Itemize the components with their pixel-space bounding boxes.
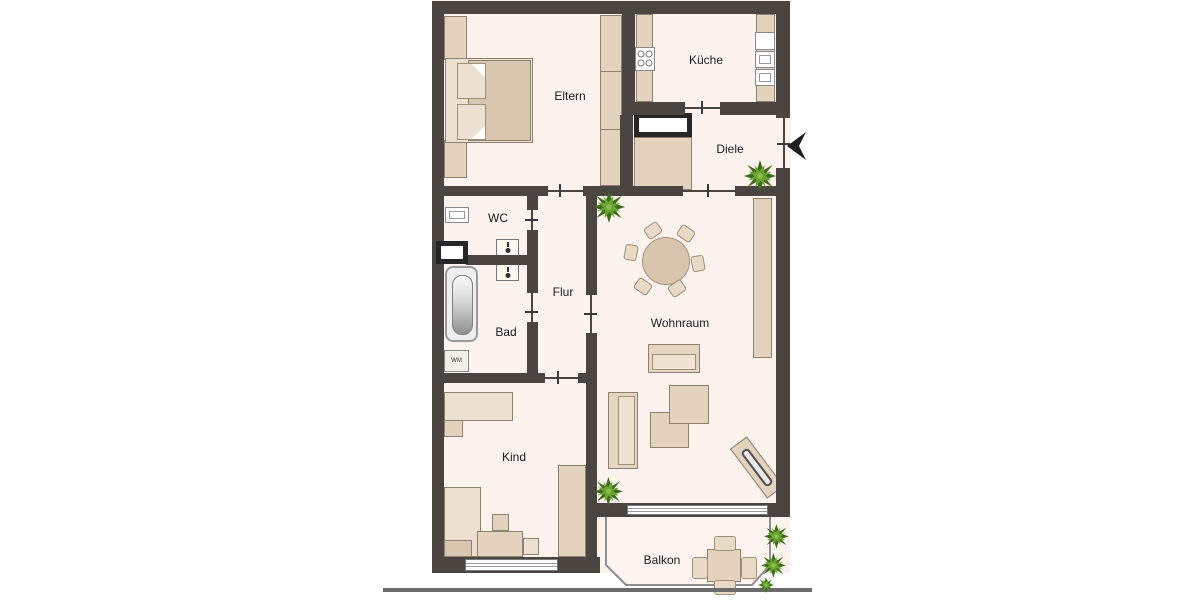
wall [776, 1, 790, 118]
wall [586, 186, 683, 196]
dining-chair [623, 243, 639, 261]
ground-line [383, 588, 812, 592]
room-label-bad: Bad [495, 325, 516, 339]
room-label-diele: Diele [716, 142, 743, 156]
room-label-balkon: Balkon [644, 553, 681, 567]
wall [583, 186, 597, 196]
bathtub-icon [445, 266, 478, 342]
floor-plan: WM [0, 0, 1200, 600]
door [683, 190, 735, 192]
wardrobe [444, 16, 467, 60]
balcony-chair [741, 557, 757, 579]
nightstand [444, 420, 463, 437]
washbasin-icon [445, 207, 469, 223]
room-label-kind: Kind [502, 450, 526, 464]
washing-machine-label: WM [451, 358, 462, 364]
wall [586, 373, 597, 573]
wardrobe [558, 465, 586, 557]
sofa [608, 392, 638, 469]
door-tick [559, 184, 561, 197]
toilet-icon [496, 264, 519, 281]
door [548, 190, 583, 192]
wall [432, 1, 790, 14]
wall [622, 14, 635, 102]
room-label-wc: WC [488, 211, 508, 225]
door-tick [707, 184, 709, 197]
sink-icon [755, 32, 775, 50]
room-label-kueche: Küche [689, 53, 723, 67]
wall [466, 255, 538, 265]
sideboard [753, 198, 772, 358]
door-tick [525, 311, 538, 313]
wall [720, 102, 776, 115]
wall [527, 322, 538, 373]
balcony-chair [692, 557, 708, 579]
wardrobe [600, 129, 622, 186]
hall-cupboard [634, 137, 692, 190]
room-label-wohnraum: Wohnraum [651, 316, 709, 330]
coffee-table [669, 385, 709, 424]
kitchen-appliance-icon [755, 51, 775, 68]
toilet-icon [496, 239, 519, 256]
dining-chair [690, 254, 706, 272]
wall [432, 186, 548, 196]
bed-pillow [444, 540, 472, 557]
room-label-flur: Flur [553, 285, 574, 299]
door-tick [777, 143, 790, 145]
wall [432, 373, 545, 383]
door [545, 377, 578, 379]
dining-table [642, 237, 690, 285]
wardrobe [600, 15, 622, 72]
door [531, 293, 533, 322]
door-tick [525, 219, 538, 221]
pillow [457, 104, 486, 140]
stove-icon [635, 47, 655, 71]
door-tick [557, 371, 559, 384]
wall [735, 186, 776, 196]
window [465, 559, 558, 571]
wall [622, 102, 685, 115]
room-label-eltern: Eltern [554, 89, 585, 103]
desk [477, 531, 523, 557]
desk-chair [492, 514, 509, 531]
bed [444, 392, 513, 421]
wall [527, 196, 538, 210]
window [627, 505, 768, 515]
door-tick [584, 313, 597, 315]
kitchen-appliance-icon [755, 69, 775, 86]
sofa [648, 344, 700, 373]
wall [620, 115, 633, 196]
wall [586, 196, 597, 295]
door-tick [701, 101, 703, 114]
wall [586, 333, 597, 373]
wall [776, 168, 790, 517]
side-table [523, 538, 539, 555]
wardrobe [444, 140, 467, 178]
pillow [457, 63, 486, 99]
wall [432, 1, 444, 573]
wardrobe [600, 71, 622, 130]
shaft-box [436, 241, 468, 264]
shaft-box [634, 113, 692, 137]
balcony-table [707, 549, 741, 582]
washing-machine-icon: WM [444, 350, 469, 372]
balcony-chair [714, 536, 736, 551]
